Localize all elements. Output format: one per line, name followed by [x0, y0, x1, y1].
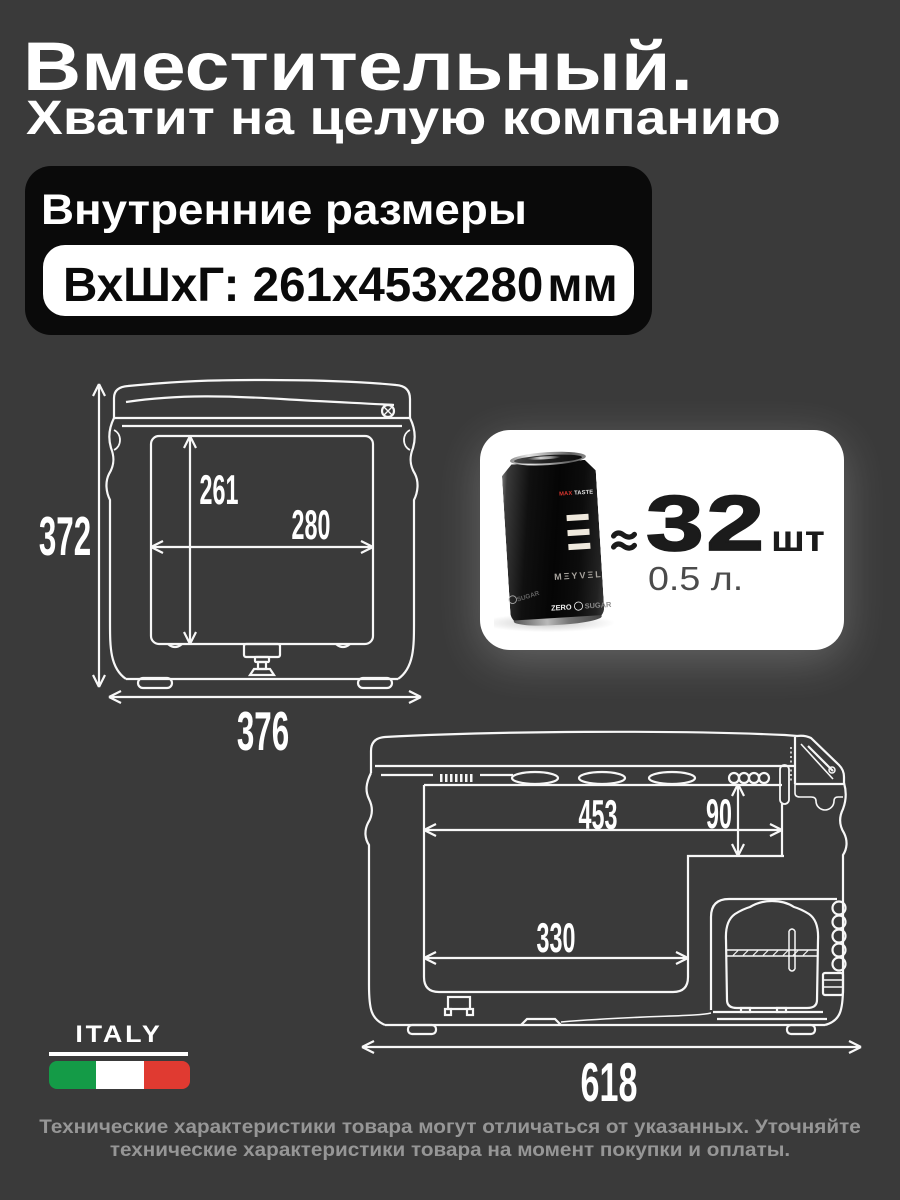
svg-text:330: 330: [537, 915, 576, 962]
svg-text:376: 376: [237, 701, 289, 762]
svg-text:618: 618: [581, 1052, 638, 1113]
svg-text:372: 372: [39, 506, 91, 567]
svg-text:280: 280: [292, 502, 331, 549]
svg-text:90: 90: [706, 791, 732, 838]
svg-text:261: 261: [200, 467, 239, 514]
svg-text:453: 453: [579, 792, 618, 839]
